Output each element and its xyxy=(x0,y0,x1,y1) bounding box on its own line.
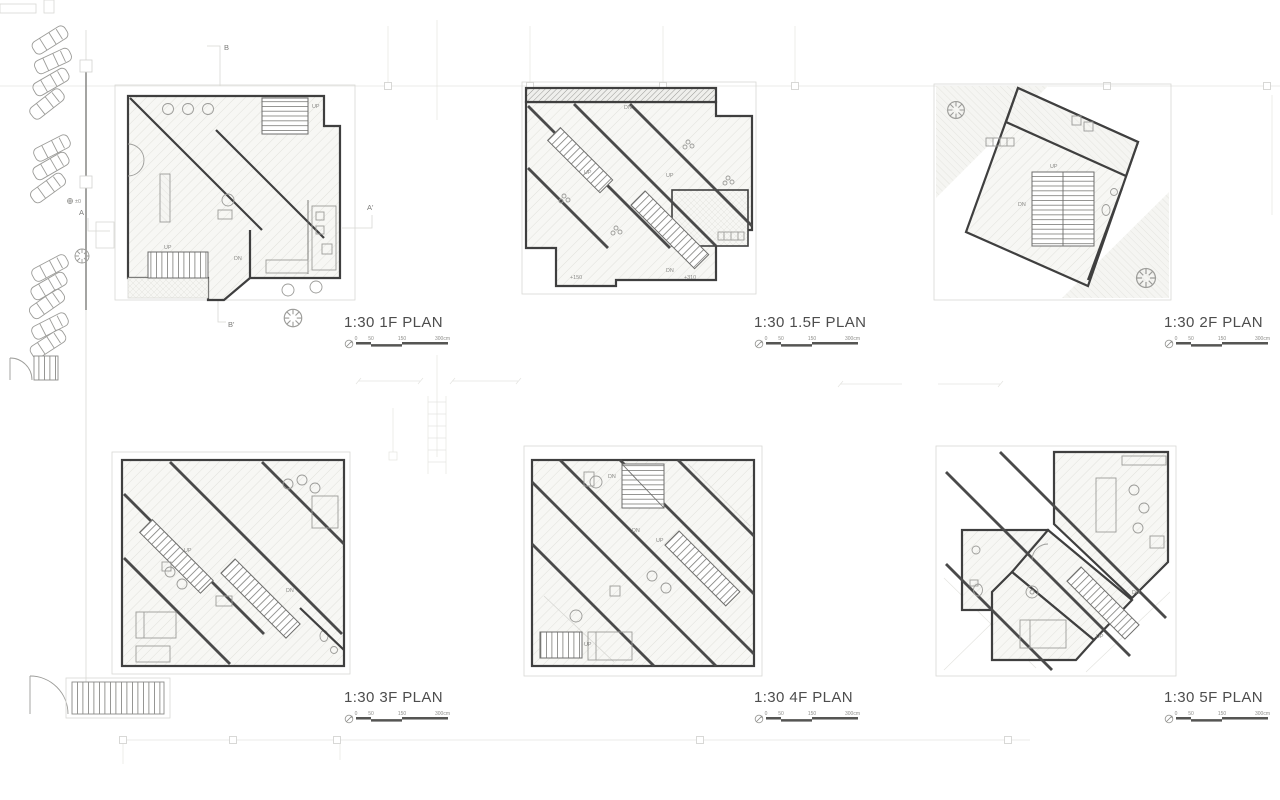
svg-text:±0: ±0 xyxy=(75,199,81,205)
plan-caption-3f: 1:30 3F PLAN 0 50 150 300cm xyxy=(344,690,456,729)
scale-bar-graphic: 0 50 150 300cm xyxy=(355,336,450,347)
drawing-sheet: B B' A A' ±0 UP UP DN xyxy=(0,0,1280,800)
svg-text:DN: DN xyxy=(632,528,640,534)
svg-text:300cm: 300cm xyxy=(845,711,860,717)
floorplan-3f: UP DN xyxy=(112,452,350,674)
plan-label-4f: 1:30 4F PLAN xyxy=(754,690,866,705)
svg-text:300cm: 300cm xyxy=(1255,711,1270,717)
svg-text:0: 0 xyxy=(355,711,358,717)
plan-label-1f: 1:30 1F PLAN xyxy=(344,315,456,330)
svg-text:0: 0 xyxy=(765,711,768,717)
scale-bar: 0 50 150 300cm xyxy=(754,334,866,354)
north-compass-icon xyxy=(755,715,763,723)
svg-text:DN: DN xyxy=(1018,202,1026,208)
street-stair-large xyxy=(72,682,164,714)
scale-bar-graphic: 0 50 150 300cm xyxy=(1175,336,1270,347)
svg-text:150: 150 xyxy=(398,336,407,342)
svg-text:DN: DN xyxy=(1132,590,1140,596)
svg-text:+150: +150 xyxy=(570,275,582,281)
scale-bar: 0 50 150 300cm xyxy=(344,334,456,354)
plan-caption-2f: 1:30 2F PLAN 0 50 150 300cm xyxy=(1164,315,1276,354)
svg-text:UP: UP xyxy=(184,548,192,554)
svg-text:150: 150 xyxy=(1218,711,1227,717)
svg-text:DN: DN xyxy=(624,105,632,111)
svg-text:300cm: 300cm xyxy=(435,336,450,342)
floorplan-1-5f: DN UP UP DN +310 +150 xyxy=(522,82,756,294)
plan-label-3f: 1:30 3F PLAN xyxy=(344,690,456,705)
stair xyxy=(148,252,208,278)
section-marker-b-prime: B' xyxy=(218,300,235,329)
svg-text:50: 50 xyxy=(368,711,374,717)
plan-caption-5f: 1:30 5F PLAN 0 50 150 300cm xyxy=(1164,690,1276,729)
svg-text:150: 150 xyxy=(808,336,817,342)
tree-icon xyxy=(284,309,302,327)
ghost-stair xyxy=(389,396,446,474)
svg-text:50: 50 xyxy=(1188,336,1194,342)
scale-bar-graphic: 0 50 150 300cm xyxy=(1175,711,1270,722)
svg-text:150: 150 xyxy=(1218,336,1227,342)
svg-text:A': A' xyxy=(367,203,374,212)
dimension-ghost xyxy=(356,378,1003,387)
svg-text:UP: UP xyxy=(584,170,592,176)
svg-text:300cm: 300cm xyxy=(1255,336,1270,342)
svg-text:DN: DN xyxy=(286,588,294,594)
parked-cars xyxy=(27,24,73,360)
section-marker-b: B xyxy=(207,43,229,86)
svg-text:150: 150 xyxy=(808,711,817,717)
entry-door-small xyxy=(10,358,32,380)
svg-text:UP: UP xyxy=(666,173,674,179)
svg-text:A: A xyxy=(79,208,84,217)
svg-text:50: 50 xyxy=(778,336,784,342)
stair xyxy=(262,98,308,134)
north-compass-icon xyxy=(1165,340,1173,348)
svg-text:DN: DN xyxy=(666,268,674,274)
svg-text:UP: UP xyxy=(584,642,592,648)
north-compass-icon xyxy=(345,715,353,723)
floorplan-2f: UP DN xyxy=(934,84,1171,300)
svg-text:UP: UP xyxy=(656,538,664,544)
svg-text:50: 50 xyxy=(778,711,784,717)
svg-text:300cm: 300cm xyxy=(435,711,450,717)
north-compass-icon xyxy=(345,340,353,348)
section-marker-a-prime: A' xyxy=(342,203,374,228)
scale-bar-graphic: 0 50 150 300cm xyxy=(355,711,450,722)
floorplan-4f: DN DN UP UP xyxy=(524,446,762,676)
entry-door-large xyxy=(30,676,68,714)
svg-text:UP: UP xyxy=(164,245,172,251)
north-compass-icon xyxy=(755,340,763,348)
scale-bar: 0 50 150 300cm xyxy=(344,709,456,729)
stair xyxy=(540,632,582,658)
plan-caption-1-5f: 1:30 1.5F PLAN 0 50 150 300cm xyxy=(754,315,866,354)
street-stair-small xyxy=(34,356,58,380)
floorplan-1f: UP UP DN xyxy=(115,85,355,300)
sheet-linework: B B' A A' ±0 UP UP DN xyxy=(0,0,1280,800)
plan-caption-4f: 1:30 4F PLAN 0 50 150 300cm xyxy=(754,690,866,729)
svg-text:150: 150 xyxy=(398,711,407,717)
svg-text:B: B xyxy=(224,43,229,52)
plan-label-5f: 1:30 5F PLAN xyxy=(1164,690,1276,705)
svg-text:DN: DN xyxy=(234,256,242,262)
svg-text:0: 0 xyxy=(355,336,358,342)
level-marker-zero: ±0 xyxy=(68,199,81,206)
scale-bar: 0 50 150 300cm xyxy=(754,709,866,729)
floorplan-5f: DN UP xyxy=(936,446,1176,676)
plan-caption-1f: 1:30 1F PLAN 0 50 150 300cm xyxy=(344,315,456,354)
scale-bar: 0 50 150 300cm xyxy=(1164,709,1276,729)
svg-text:UP: UP xyxy=(1050,164,1058,170)
scale-bar-graphic: 0 50 150 300cm xyxy=(765,711,860,722)
svg-text:50: 50 xyxy=(368,336,374,342)
tree-icon xyxy=(75,249,89,263)
plan-label-1-5f: 1:30 1.5F PLAN xyxy=(754,315,866,330)
svg-text:0: 0 xyxy=(1175,336,1178,342)
scale-bar: 0 50 150 300cm xyxy=(1164,334,1276,354)
svg-text:UP: UP xyxy=(312,104,320,110)
svg-text:0: 0 xyxy=(1175,711,1178,717)
svg-text:300cm: 300cm xyxy=(845,336,860,342)
plan-label-2f: 1:30 2F PLAN xyxy=(1164,315,1276,330)
north-compass-icon xyxy=(1165,715,1173,723)
svg-text:UP: UP xyxy=(1096,634,1104,640)
svg-text:+310: +310 xyxy=(684,275,696,281)
svg-text:0: 0 xyxy=(765,336,768,342)
svg-text:50: 50 xyxy=(1188,711,1194,717)
scale-bar-graphic: 0 50 150 300cm xyxy=(765,336,860,347)
svg-text:DN: DN xyxy=(608,474,616,480)
svg-text:B': B' xyxy=(228,320,235,329)
